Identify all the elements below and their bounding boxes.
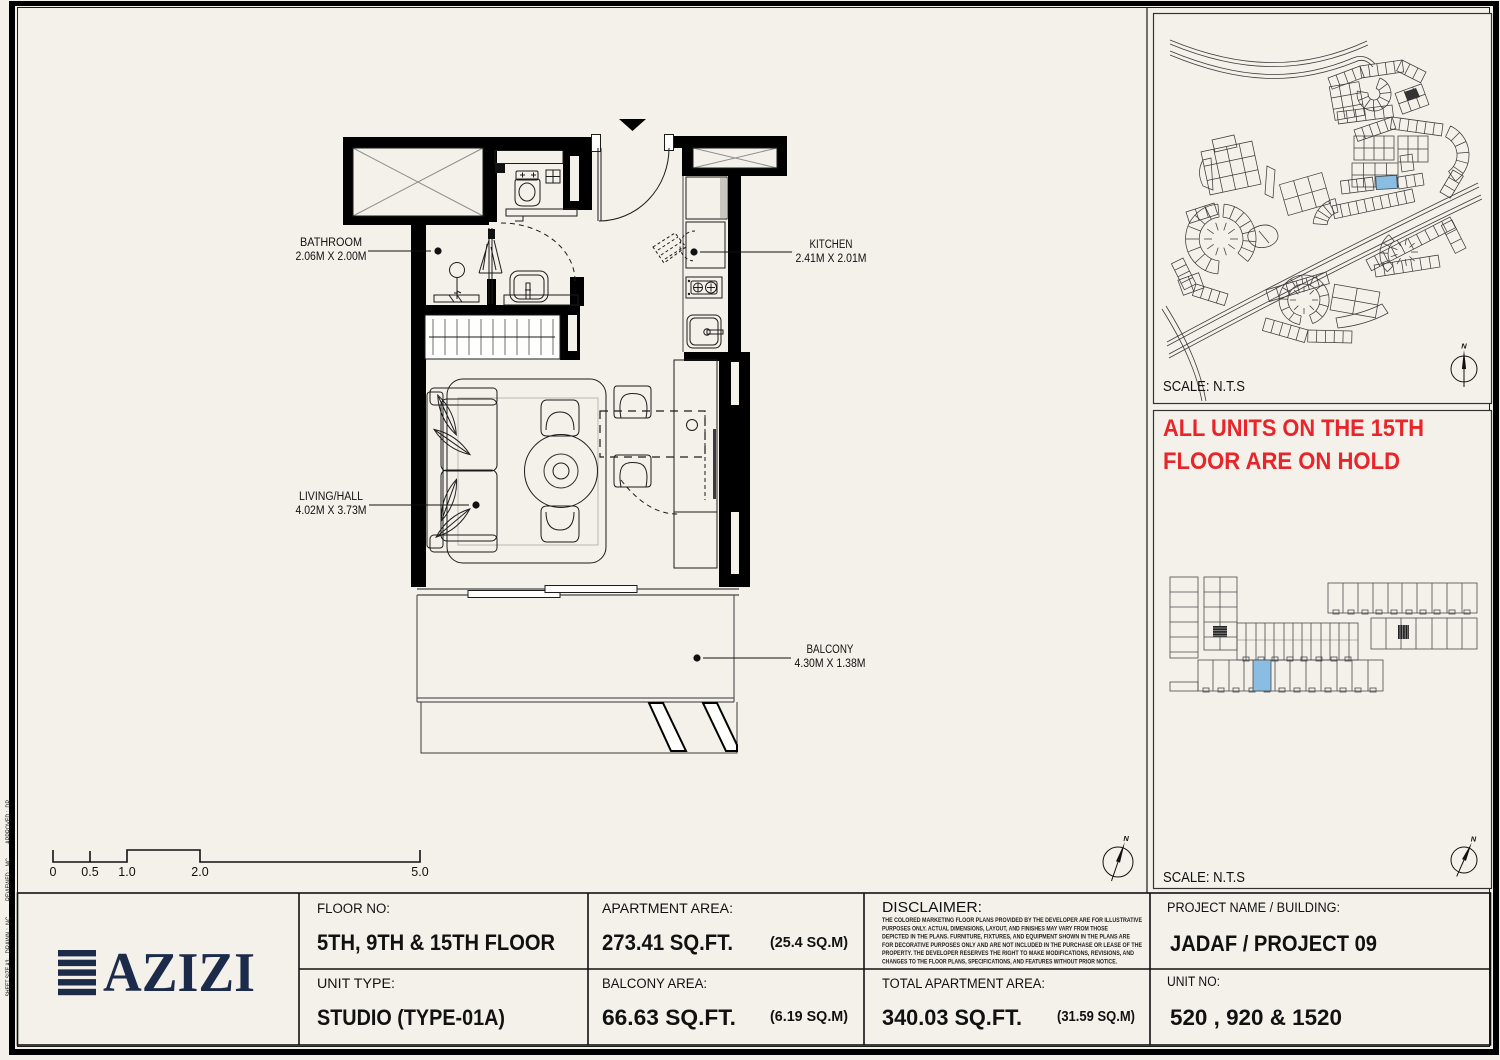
svg-text:REVIEWED : MC: REVIEWED : MC (6, 858, 13, 901)
svg-text:UNIT NO:: UNIT NO: (1167, 974, 1220, 989)
svg-text:BATHROOM: BATHROOM (300, 237, 362, 249)
svg-text:KITCHEN: KITCHEN (810, 239, 853, 251)
svg-text:520 , 920 & 1520: 520 , 920 & 1520 (1170, 1005, 1342, 1030)
svg-text:4.02M X 3.73M: 4.02M X 3.73M (296, 505, 367, 517)
svg-text:2.06M X 2.00M: 2.06M X 2.00M (296, 251, 367, 263)
svg-text:UNIT TYPE:: UNIT TYPE: (317, 976, 395, 991)
svg-text:0.5: 0.5 (81, 865, 98, 879)
svg-text:340.03 SQ.FT.: 340.03 SQ.FT. (882, 1005, 1022, 1030)
svg-text:0: 0 (50, 865, 57, 879)
svg-text:FOR DECORATIVE PURPOSES ONLY A: FOR DECORATIVE PURPOSES ONLY AND ARE NOT… (882, 942, 1142, 949)
svg-text:CHANGES TO THE FLOOR PLANS, SP: CHANGES TO THE FLOOR PLANS, SPECIFICATIO… (882, 959, 1117, 966)
svg-text:FLOOR ARE ON HOLD: FLOOR ARE ON HOLD (1163, 448, 1400, 475)
svg-text:2.41M X 2.01M: 2.41M X 2.01M (796, 253, 867, 265)
svg-text:DRAWN : NC: DRAWN : NC (6, 917, 13, 954)
svg-text:JADAF / PROJECT 09: JADAF / PROJECT 09 (1170, 931, 1377, 956)
svg-text:BALCONY AREA:: BALCONY AREA: (602, 976, 707, 991)
svg-text:BALCONY: BALCONY (807, 644, 854, 656)
svg-text:2.0: 2.0 (191, 865, 208, 879)
svg-text:APPROVED : DP: APPROVED : DP (6, 800, 13, 844)
svg-text:DISCLAIMER:: DISCLAIMER: (882, 900, 982, 916)
svg-text:LIVING/HALL: LIVING/HALL (299, 491, 364, 503)
svg-text:SCALE: N.T.S: SCALE: N.T.S (1163, 870, 1245, 886)
svg-text:4.30M X 1.38M: 4.30M X 1.38M (795, 658, 866, 670)
svg-text:APARTMENT AREA:: APARTMENT AREA: (602, 901, 733, 916)
svg-text:66.63 SQ.FT.: 66.63 SQ.FT. (602, 1005, 736, 1030)
svg-text:PROJECT NAME / BUILDING:: PROJECT NAME / BUILDING: (1167, 900, 1340, 915)
svg-text:273.41 SQ.FT.: 273.41 SQ.FT. (602, 930, 733, 955)
svg-text:AZIZI: AZIZI (103, 942, 255, 1004)
svg-text:ALL UNITS ON THE 15TH: ALL UNITS ON THE 15TH (1163, 415, 1424, 442)
svg-text:PROPERTY. THE DEVELOPER RESERV: PROPERTY. THE DEVELOPER RESERVES THE RIG… (882, 950, 1134, 957)
svg-text:SCALE: N.T.S: SCALE: N.T.S (1163, 379, 1245, 395)
svg-text:(6.19 SQ.M): (6.19 SQ.M) (770, 1009, 848, 1025)
svg-text:N: N (1123, 834, 1129, 843)
svg-text:FLOOR NO:: FLOOR NO: (317, 901, 390, 916)
svg-text:1.0: 1.0 (118, 865, 135, 879)
svg-text:N: N (1461, 342, 1467, 351)
svg-text:N: N (1471, 835, 1477, 844)
svg-text:THE COLORED MARKETING FLOOR PL: THE COLORED MARKETING FLOOR PLANS PROVID… (882, 917, 1142, 924)
svg-text:(25.4 SQ.M): (25.4 SQ.M) (770, 935, 848, 951)
svg-text:TOTAL APARTMENT AREA:: TOTAL APARTMENT AREA: (882, 976, 1045, 991)
svg-text:5.0: 5.0 (411, 865, 428, 879)
svg-text:5TH, 9TH & 15TH FLOOR: 5TH, 9TH & 15TH FLOOR (317, 930, 555, 955)
svg-text:(31.59 SQ.M): (31.59 SQ.M) (1057, 1009, 1135, 1025)
svg-text:PURPOSES ONLY. ACTUAL DIMENSIO: PURPOSES ONLY. ACTUAL DIMENSIONS, LAYOUT… (882, 925, 1108, 932)
svg-text:SHEET SIZE A3: SHEET SIZE A3 (6, 959, 13, 996)
svg-text:DEPICTED IN THE PLANS. FURNITU: DEPICTED IN THE PLANS. FURNITURE, FIXTUR… (882, 934, 1130, 941)
svg-text:STUDIO (TYPE-01A): STUDIO (TYPE-01A) (317, 1005, 505, 1030)
